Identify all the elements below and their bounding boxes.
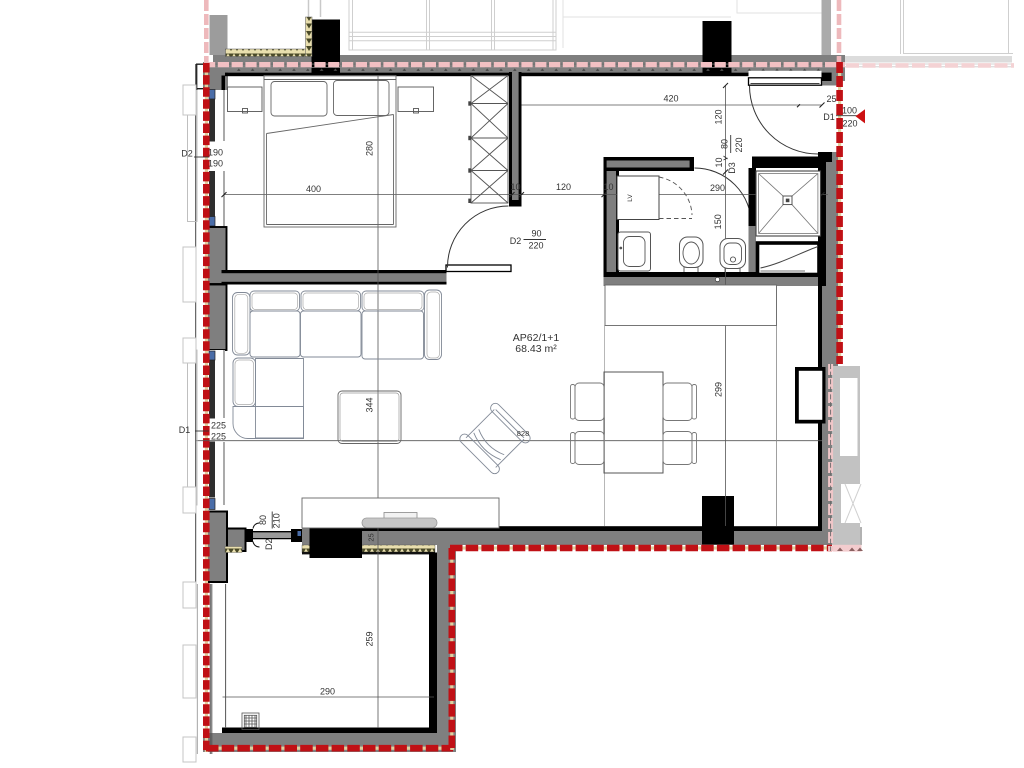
svg-text:D2: D2 [264, 538, 274, 550]
svg-text:10: 10 [603, 182, 613, 192]
svg-text:100: 100 [842, 106, 857, 116]
svg-text:80: 80 [258, 515, 268, 525]
svg-text:10: 10 [714, 157, 724, 167]
svg-text:AP62/1+1: AP62/1+1 [513, 332, 560, 344]
svg-text:210: 210 [272, 513, 282, 528]
svg-text:LV: LV [627, 194, 634, 202]
svg-text:120: 120 [556, 182, 571, 192]
svg-text:D2: D2 [181, 148, 193, 158]
svg-text:259: 259 [364, 631, 374, 646]
svg-text:225: 225 [211, 431, 226, 441]
svg-text:D3: D3 [727, 162, 737, 174]
svg-text:290: 290 [320, 687, 335, 697]
svg-text:190: 190 [208, 159, 223, 169]
svg-text:220: 220 [734, 137, 744, 152]
svg-text:D2: D2 [510, 236, 522, 246]
svg-text:280: 280 [364, 141, 374, 156]
svg-text:90: 90 [531, 228, 541, 238]
svg-text:68.43 m²: 68.43 m² [515, 343, 557, 355]
svg-text:150: 150 [713, 214, 723, 229]
svg-text:220: 220 [842, 119, 857, 129]
svg-text:290: 290 [710, 183, 725, 193]
svg-text:25: 25 [826, 94, 836, 104]
svg-text:225: 225 [211, 420, 226, 430]
svg-text:828: 828 [517, 429, 530, 438]
svg-text:80: 80 [719, 139, 729, 149]
svg-text:420: 420 [663, 94, 678, 104]
svg-text:344: 344 [364, 397, 374, 412]
svg-text:120: 120 [714, 109, 724, 124]
svg-text:299: 299 [714, 382, 724, 397]
svg-text:D1: D1 [823, 112, 835, 122]
svg-text:25: 25 [367, 533, 376, 541]
svg-text:D1: D1 [179, 425, 191, 435]
svg-text:400: 400 [306, 184, 321, 194]
svg-text:220: 220 [528, 241, 543, 251]
svg-text:10: 10 [510, 182, 520, 192]
svg-text:190: 190 [208, 148, 223, 158]
